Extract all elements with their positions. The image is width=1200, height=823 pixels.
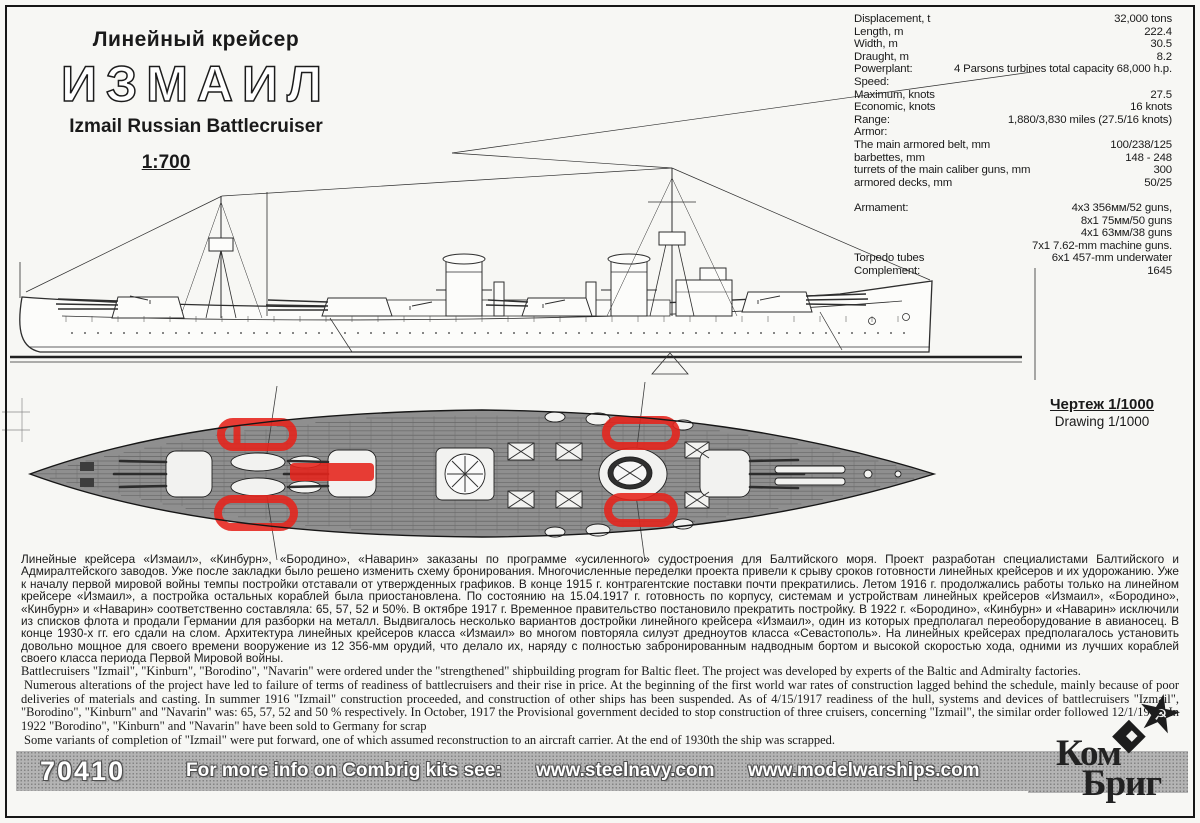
spec-value: 222.4 [1144,26,1172,39]
drawing-scale-label: Чертеж 1/1000 Drawing 1/1000 [1022,396,1182,429]
spec-label: Range: [854,114,890,127]
spec-row: Powerplant:4 Parsons turbines total capa… [854,63,1172,76]
spec-row: The main armored belt, mm100/238/125 [854,139,1172,152]
spec-label: Armor: [854,126,887,139]
spec-label: Length, m [854,26,903,39]
en-paragraph: Some variants of completion of "Izmail" … [21,734,1179,748]
history-text-ru: Линейные крейсера «Измаил», «Кинбурн», «… [21,553,1179,665]
spec-value: 7x1 7.62-mm machine guns. [1032,240,1172,253]
spec-value: 4 Parsons turbines total capacity 68,000… [954,63,1172,76]
spec-label: Speed: [854,76,889,89]
footer-url-steelnavy: www.steelnavy.com [536,751,714,791]
spec-label: Torpedo tubes [854,252,924,265]
spec-value: 8.2 [1157,51,1172,64]
spec-table: Displacement, t32,000 tonsLength, m222.4… [854,13,1172,277]
spec-label: Complement: [854,265,920,278]
kit-number: 70410 [40,751,125,791]
logo-text-line2: Бриг [1082,762,1161,805]
spec-row: Economic, knots16 knots [854,101,1172,114]
red-marker-oval-bottom-left [218,499,294,527]
spec-value: 6x1 457-mm underwater [1052,252,1172,265]
spec-row: armored decks, mm50/25 [854,177,1172,190]
spec-row: Width, m30.5 [854,38,1172,51]
spec-value: 16 knots [1130,101,1172,114]
spec-label: Armament: [854,202,908,215]
spec-row: Maximum, knots27.5 [854,89,1172,102]
en-paragraph: Numerous alterations of the project have… [21,679,1179,734]
spec-value: 50/25 [1144,177,1172,190]
spec-label: The main armored belt, mm [854,139,990,152]
spec-row: Speed: [854,76,1172,89]
en-paragraph: Battlecruisers "Izmail", "Kinburn", "Bor… [21,665,1179,679]
spec-value: 148 - 248 [1125,152,1172,165]
spec-row: Armament:4x3 356мм/52 guns, [854,202,1172,215]
red-marker-oval-bottom-right [608,497,674,523]
drawing-scale-ru: Чертеж 1/1000 [1022,396,1182,413]
spec-value: 4x3 356мм/52 guns, [1072,202,1172,215]
spec-row: Torpedo tubes6x1 457-mm underwater [854,252,1172,265]
spec-row: Complement:1645 [854,265,1172,278]
red-correction-markers [218,420,676,527]
instruction-sheet: Линейный крейсер ИЗМАИЛ Izmail Russian B… [0,0,1200,823]
red-marker-bar [290,463,374,481]
spec-label: Draught, m [854,51,909,64]
spec-value: 300 [1153,164,1172,177]
spec-row: Armor: [854,126,1172,139]
spec-row: Length, m222.4 [854,26,1172,39]
ship-name-ru: ИЗМАИЛ [61,56,331,112]
plan-view-drawing [2,382,934,562]
spec-label: Maximum, knots [854,89,935,102]
combrig-logo: ★ ☭ ◆ ◆ Ком Бриг [1040,686,1190,816]
diamond-inner-icon: ◆ [1126,726,1138,744]
history-text-en: Battlecruisers "Izmail", "Kinburn", "Bor… [21,665,1179,748]
red-marker-oval-top-right [606,420,676,446]
title-block: Линейный крейсер ИЗМАИЛ Izmail Russian B… [28,28,364,174]
hammer-sickle-icon: ☭ [1154,706,1167,724]
spec-row: 8x1 75мм/50 guns [854,215,1172,228]
spec-row: 4x1 63мм/38 guns [854,227,1172,240]
spec-value: 27.5 [1150,89,1172,102]
drawing-scale-en: Drawing 1/1000 [1022,414,1182,429]
spec-label: Economic, knots [854,101,935,114]
spec-row: Range:1,880/3,830 miles (27.5/16 knots) [854,114,1172,127]
spec-value: 8x1 75мм/50 guns [1081,215,1172,228]
spec-label: armored decks, mm [854,177,952,190]
spec-label: barbettes, mm [854,152,925,165]
ship-class-ru: Линейный крейсер [28,28,364,52]
footer-promo-text: For more info on Combrig kits see: [186,751,502,791]
spec-value: 32,000 tons [1114,13,1172,26]
spec-row: barbettes, mm148 - 248 [854,152,1172,165]
spec-value: 4x1 63мм/38 guns [1081,227,1172,240]
spec-value: 1,880/3,830 miles (27.5/16 knots) [1008,114,1172,127]
spec-label: Powerplant: [854,63,913,76]
ship-name-outline: ИЗМАИЛ [28,54,364,114]
spec-value: 30.5 [1150,38,1172,51]
footer-bar: 70410 For more info on Combrig kits see:… [16,751,1037,791]
spec-row [854,189,1172,202]
spec-label: Width, m [854,38,898,51]
spec-label: Displacement, t [854,13,930,26]
spec-row: turrets of the main caliber guns, mm300 [854,164,1172,177]
spec-value: 100/238/125 [1110,139,1172,152]
spec-row: Draught, m8.2 [854,51,1172,64]
spec-row: 7x1 7.62-mm machine guns. [854,240,1172,253]
kit-scale: 1:700 [0,152,334,174]
footer-url-modelwarships: www.modelwarships.com [748,751,980,791]
spec-label: turrets of the main caliber guns, mm [854,164,1030,177]
red-marker-oval-top-left [221,422,293,447]
spec-row: Displacement, t32,000 tons [854,13,1172,26]
spec-value: 1645 [1147,265,1172,278]
ship-name-en: Izmail Russian Battlecruiser [28,116,364,138]
